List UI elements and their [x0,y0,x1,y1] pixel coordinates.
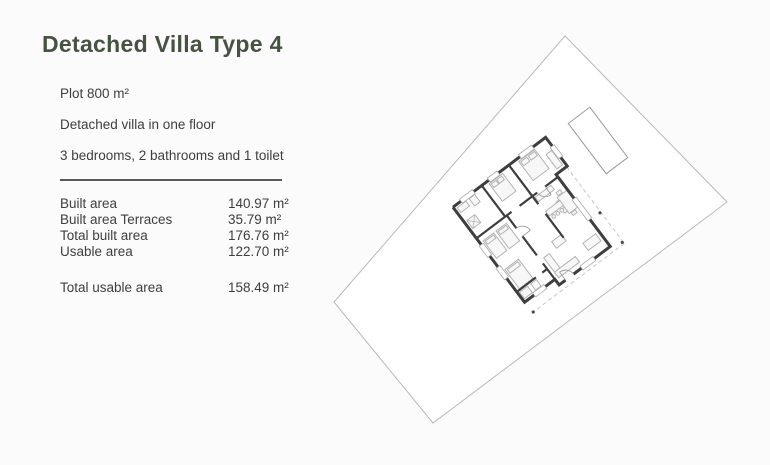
area-label: Built area Terraces [60,212,228,228]
area-label: Usable area [60,244,228,260]
page-title: Detached Villa Type 4 [42,31,342,58]
area-value: 176.76 m² [228,228,342,244]
summary-line-plot: Plot 800 m² [60,86,342,101]
divider [60,179,282,181]
details-panel: Detached Villa Type 4 Plot 800 m² Detach… [42,31,342,296]
area-label: Built area [60,196,228,212]
area-label: Total usable area [60,280,228,296]
area-label: Total built area [60,228,228,244]
area-row: Built area Terraces 35.79 m² [60,212,342,228]
area-value: 158.49 m² [228,280,342,296]
area-value: 35.79 m² [228,212,342,228]
summary-line-rooms: 3 bedrooms, 2 bathrooms and 1 toilet [60,148,342,163]
area-row: Total built area 176.76 m² [60,228,342,244]
total-area-row: Total usable area 158.49 m² [60,280,342,296]
summary: Plot 800 m² Detached villa in one floor … [60,86,342,163]
area-value: 122.70 m² [228,244,342,260]
area-value: 140.97 m² [228,196,342,212]
summary-line-floors: Detached villa in one floor [60,117,342,132]
area-row: Usable area 122.70 m² [60,244,342,260]
plot-boundary [334,36,727,423]
area-row: Built area 140.97 m² [60,196,342,212]
areas-table: Built area 140.97 m² Built area Terraces… [60,196,342,296]
